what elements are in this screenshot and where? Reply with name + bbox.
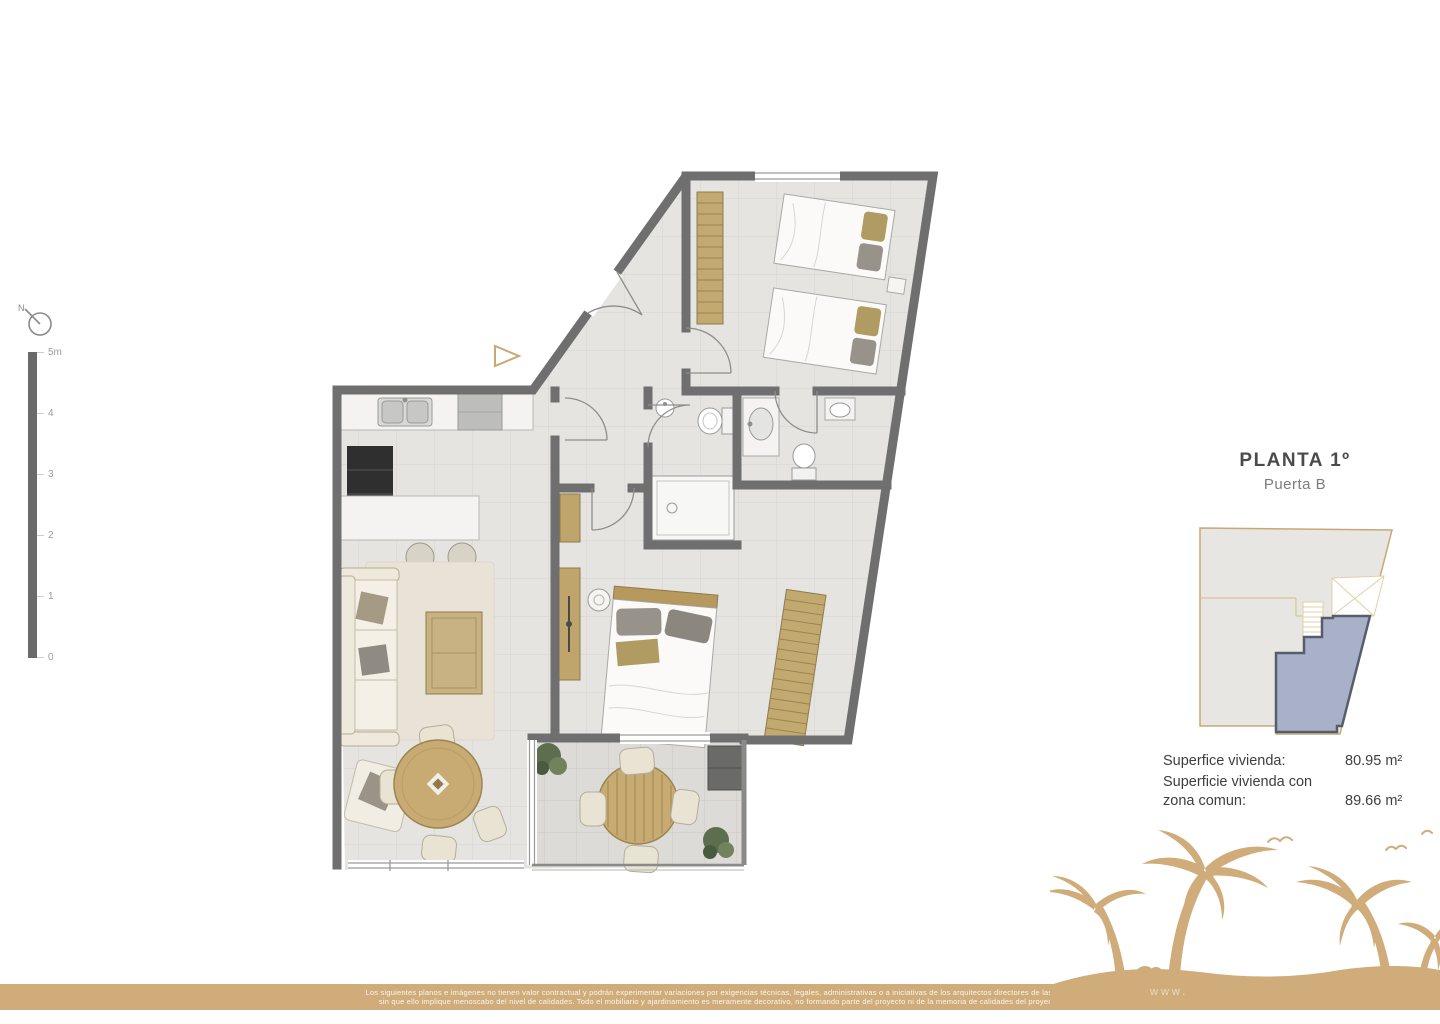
surface-row: Superficie vivienda con zona comun: 89.6… xyxy=(1163,773,1431,811)
toilet xyxy=(698,408,735,434)
terrace-chair xyxy=(623,845,659,873)
page-subtitle: Puerta B xyxy=(1165,476,1425,493)
scale-label: 1 xyxy=(48,591,54,602)
kitchen-sink xyxy=(378,398,432,427)
floor-plan-page: { "compass": { "label": "N" }, "scale_ba… xyxy=(0,0,1440,1024)
entry-arrow-icon xyxy=(495,346,519,366)
scale-bar: 5m 4 3 2 1 0 xyxy=(28,352,88,672)
palm-trees-illustration xyxy=(1050,820,1440,1010)
compass-north-icon: N xyxy=(14,298,62,346)
terrace-chair xyxy=(670,788,700,825)
scale-label: 2 xyxy=(48,530,54,541)
palm-silhouettes xyxy=(1050,830,1440,1010)
vanity-sink xyxy=(743,398,779,456)
page-title: PLANTA 1º xyxy=(1165,450,1425,472)
plan-header: PLANTA 1º Puerta B xyxy=(1165,450,1425,493)
terrace-table xyxy=(598,764,678,844)
scale-tick xyxy=(37,535,44,536)
compass-needle xyxy=(25,309,40,324)
dining-chair xyxy=(421,834,458,863)
sofa xyxy=(339,568,399,746)
compass-n-label: N xyxy=(18,303,25,313)
scale-tick xyxy=(37,596,44,597)
scale-label: 5m xyxy=(48,347,62,358)
scale-tick xyxy=(37,657,44,658)
surface-label: Superficie vivienda con zona comun: xyxy=(1163,773,1345,811)
scale-tick xyxy=(37,474,44,475)
surface-row: Superfice vivienda: 80.95 m² xyxy=(1163,752,1431,771)
wardrobe xyxy=(697,192,723,324)
scale-label: 4 xyxy=(48,408,54,419)
built-in-wardrobe xyxy=(558,568,580,680)
watermark: www. xyxy=(1150,986,1430,998)
surface-value: 80.95 m² xyxy=(1345,752,1402,771)
scale-tick xyxy=(37,352,44,353)
surface-label: Superfice vivienda: xyxy=(1163,752,1345,771)
scale-label: 3 xyxy=(48,469,54,480)
apartment-floor-plan xyxy=(320,160,950,884)
surface-info: Superfice vivienda: 80.95 m² Superficie … xyxy=(1163,752,1431,813)
wall-basin xyxy=(825,398,855,420)
stair-shaft xyxy=(1332,576,1384,616)
surface-value: 89.66 m² xyxy=(1345,792,1402,811)
double-bed xyxy=(601,586,718,747)
bedside-lamp-table xyxy=(588,589,610,611)
scale-bar-rule xyxy=(28,352,37,658)
living-room xyxy=(339,562,509,864)
toilet xyxy=(792,444,816,480)
coffee-table xyxy=(426,612,482,694)
washbasin xyxy=(656,399,674,417)
building-location-minimap xyxy=(1188,520,1400,740)
terrace-chair xyxy=(580,792,606,826)
terrace-chair xyxy=(619,747,655,776)
scale-label: 0 xyxy=(48,652,54,663)
cabinet xyxy=(560,494,580,542)
shower xyxy=(652,476,734,540)
kitchen-island xyxy=(337,496,479,540)
stairs xyxy=(1303,602,1323,638)
bedside-table xyxy=(887,277,906,294)
birds-icon xyxy=(1268,831,1432,850)
scale-tick xyxy=(37,413,44,414)
